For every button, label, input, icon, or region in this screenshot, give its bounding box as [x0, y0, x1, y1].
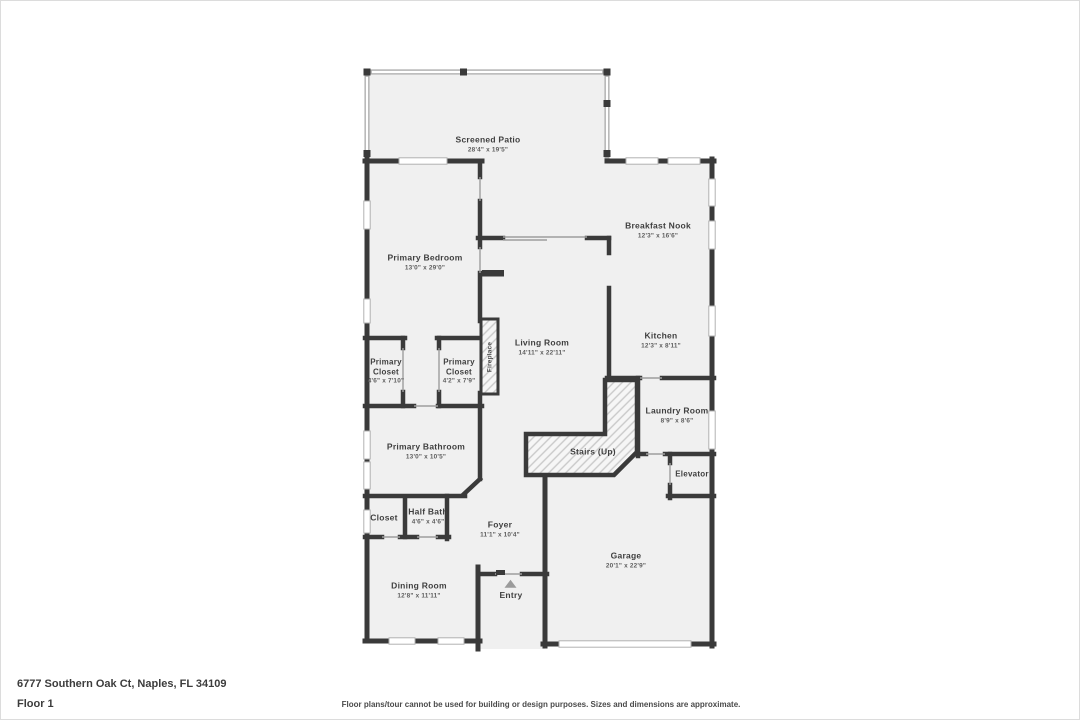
- disclaimer-text: Floor plans/tour cannot be used for buil…: [342, 700, 741, 709]
- floor-plan-drawing: [1, 1, 1080, 720]
- floor-footprint: [365, 69, 714, 649]
- floor-plan-page: Screened Patio 28'4" x 19'5" Breakfast N…: [0, 0, 1080, 720]
- property-address: 6777 Southern Oak Ct, Naples, FL 34109: [17, 678, 227, 690]
- fireplace-shape: [481, 319, 498, 394]
- floor-number-label: Floor 1: [17, 698, 54, 710]
